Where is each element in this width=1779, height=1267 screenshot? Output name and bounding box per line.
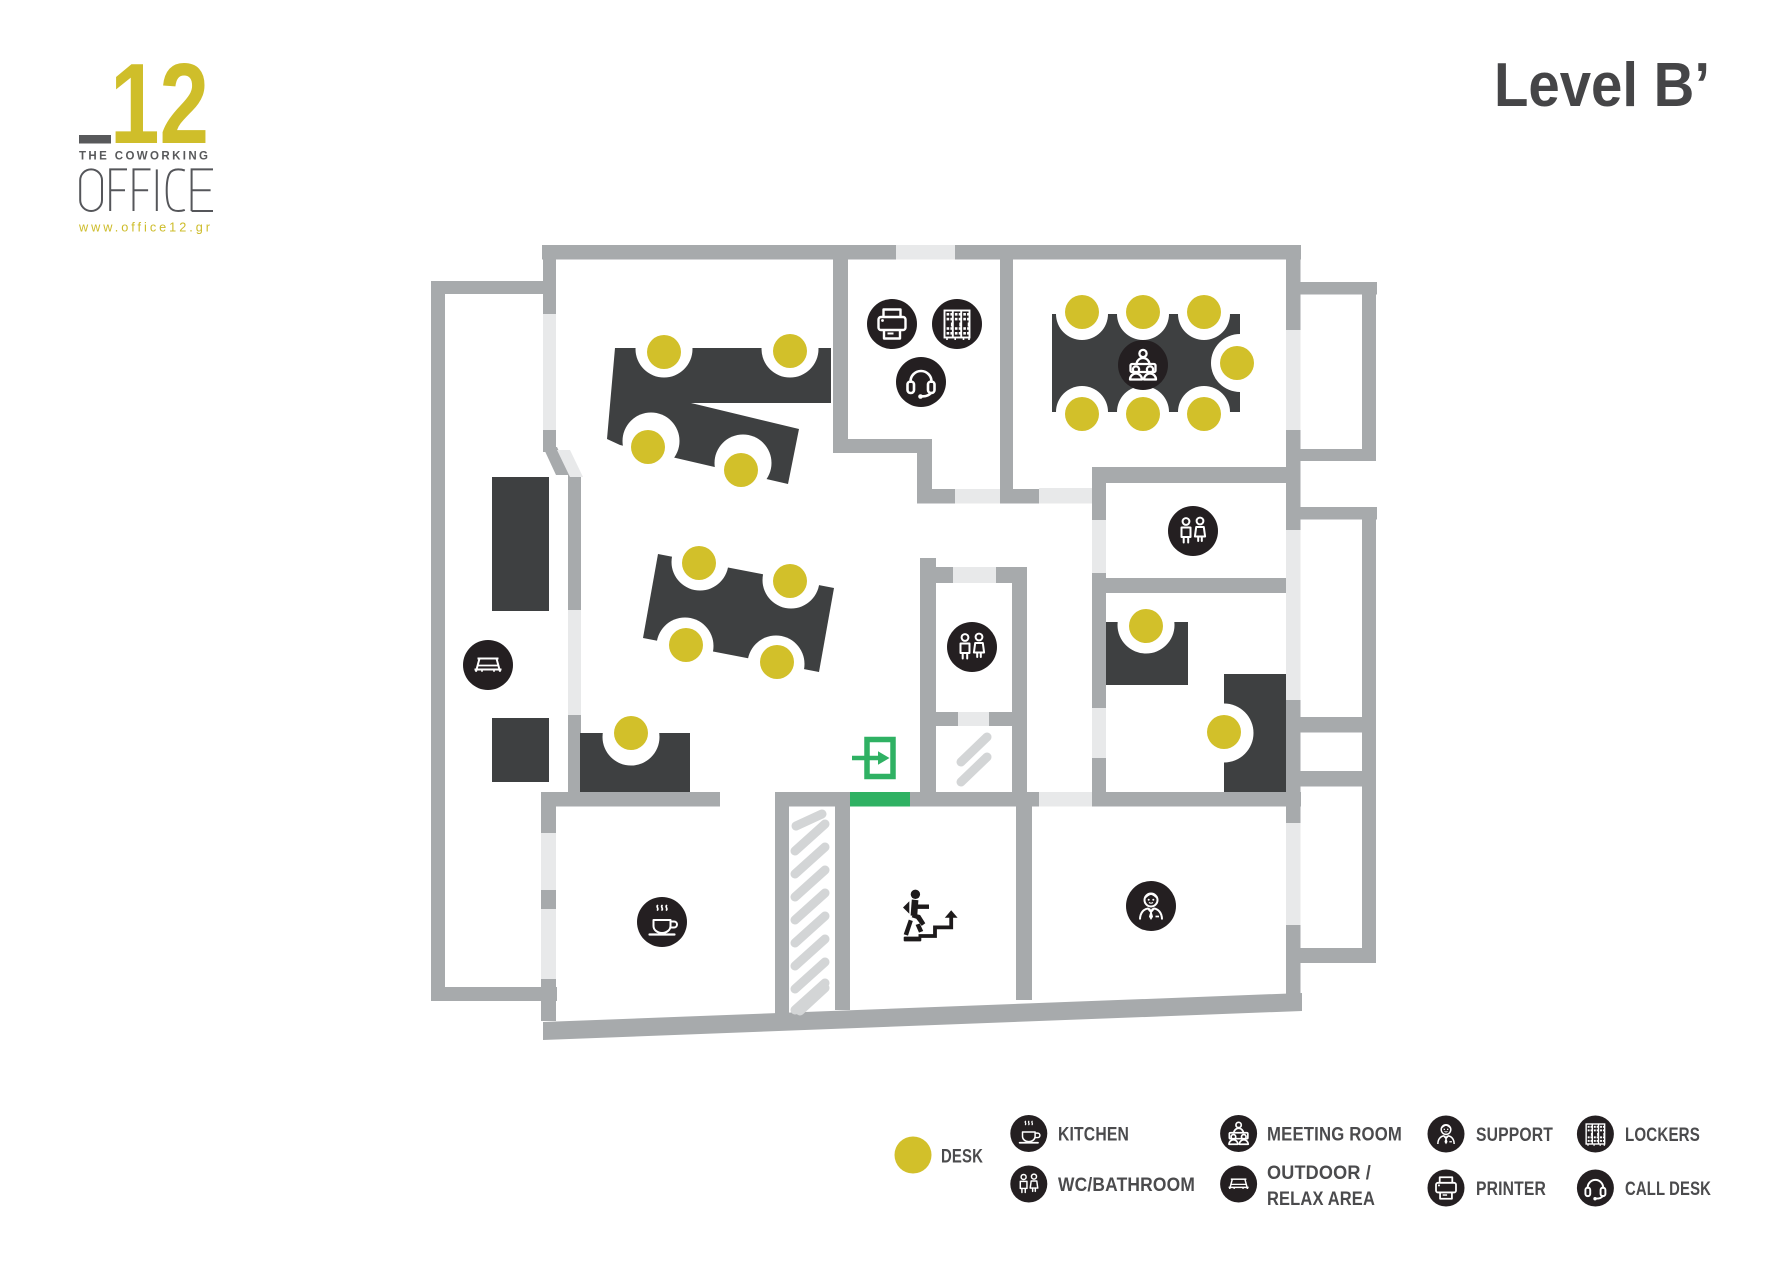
svg-text:Level B’: Level B’ [1494,51,1710,120]
svg-text:PRINTER: PRINTER [1476,1178,1546,1200]
svg-text:THE COWORKING: THE COWORKING [79,151,208,163]
svg-text:WC/BATHROOM: WC/BATHROOM [1058,1174,1195,1196]
svg-text:www.office12.gr: www.office12.gr [78,221,211,235]
svg-text:OUTDOOR /: OUTDOOR / [1267,1162,1371,1184]
svg-text:LOCKERS: LOCKERS [1625,1124,1700,1146]
svg-text:KITCHEN: KITCHEN [1058,1124,1129,1146]
svg-text:MEETING ROOM: MEETING ROOM [1267,1124,1402,1146]
svg-text:DESK: DESK [941,1146,983,1168]
svg-text:CALL DESK: CALL DESK [1625,1178,1711,1200]
svg-text:RELAX AREA: RELAX AREA [1267,1188,1375,1210]
svg-text:SUPPORT: SUPPORT [1476,1124,1553,1146]
svg-text:12: 12 [110,41,209,168]
